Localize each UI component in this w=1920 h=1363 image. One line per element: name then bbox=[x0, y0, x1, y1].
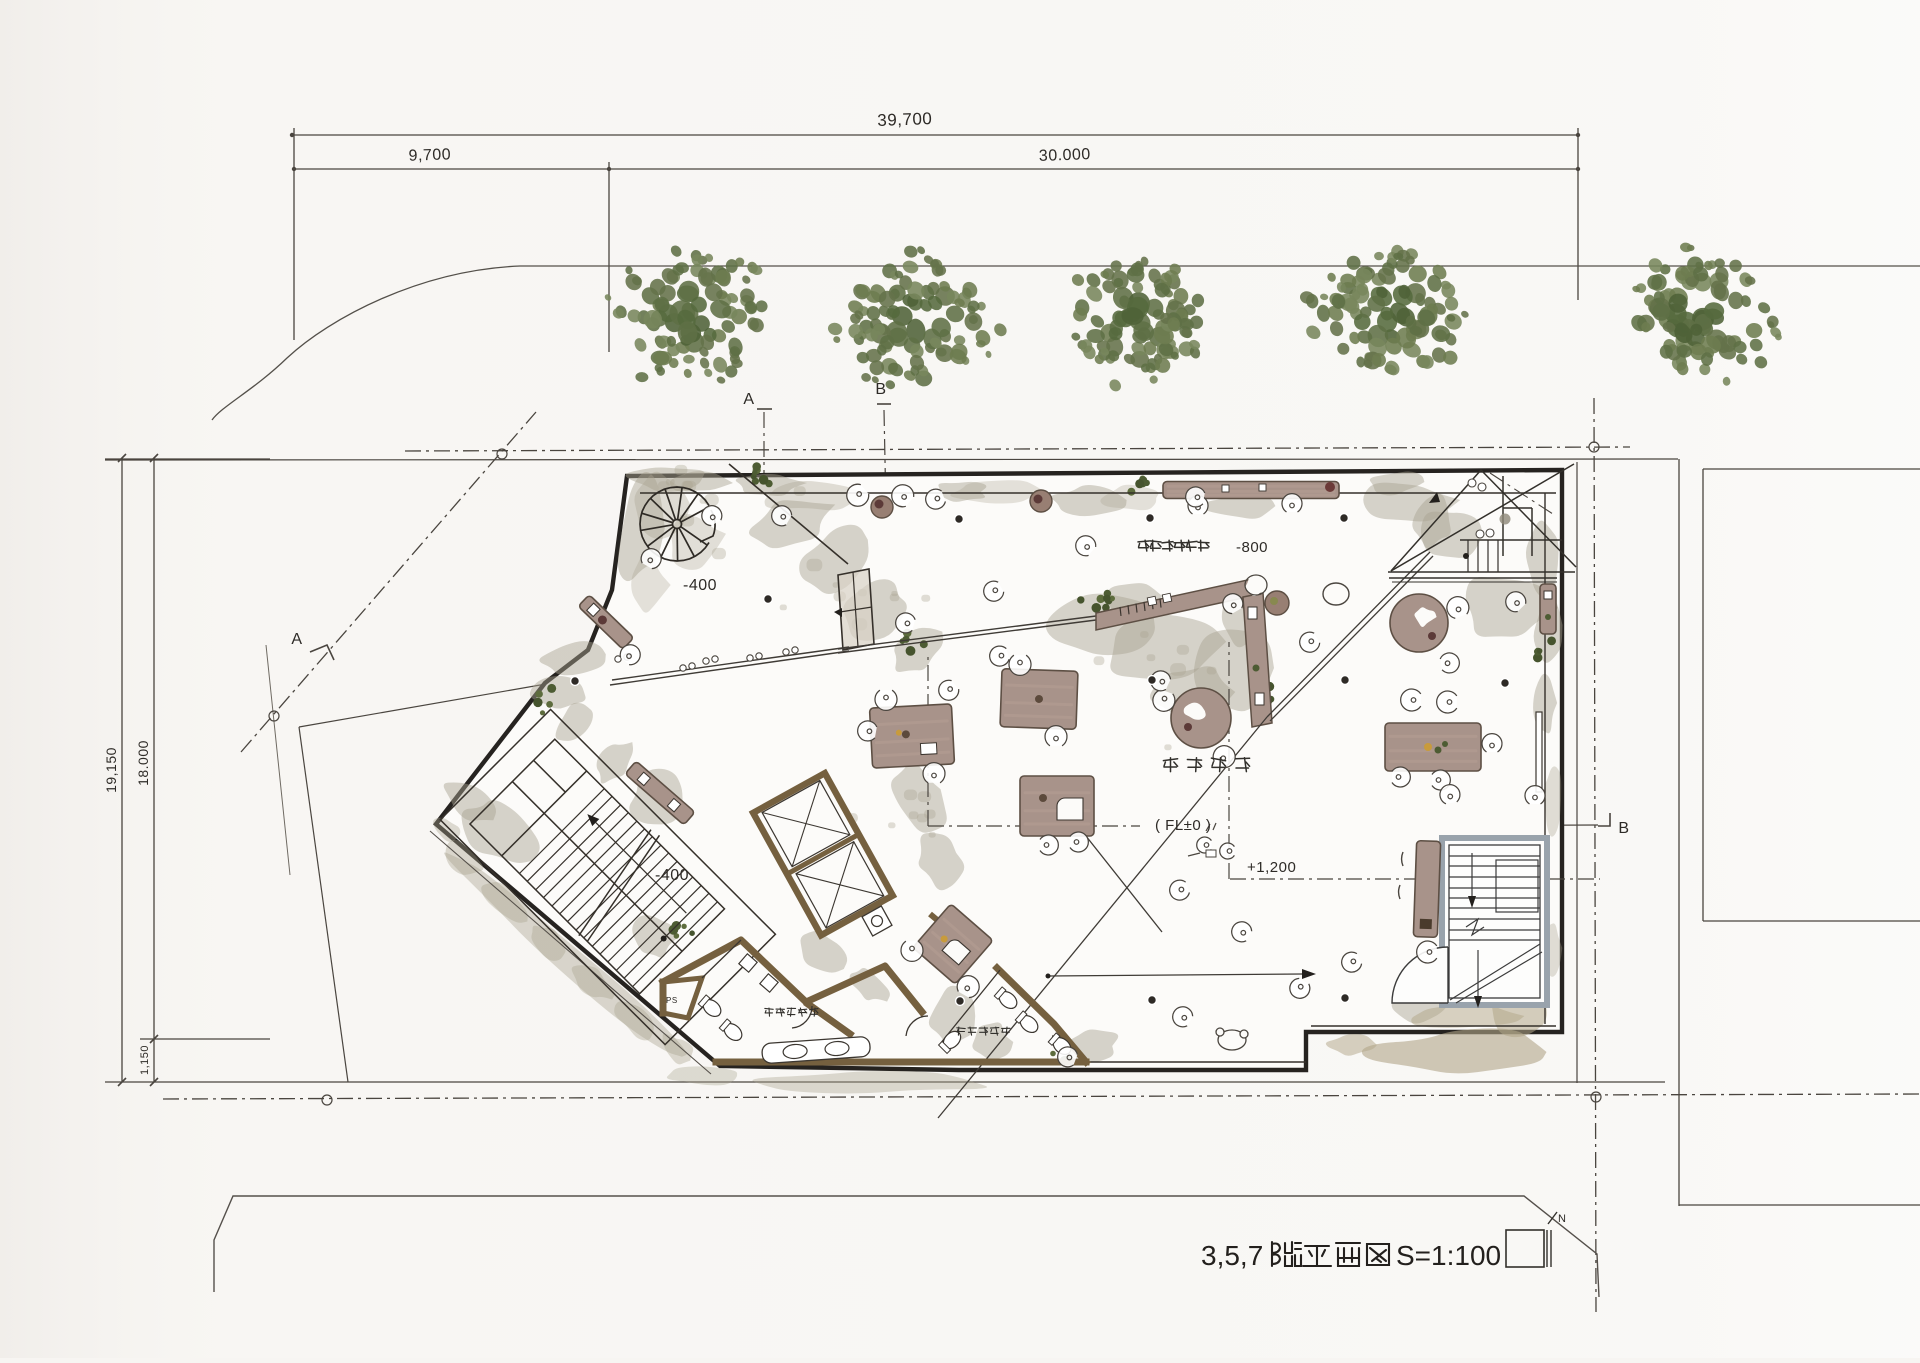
svg-text:3,5,7: 3,5,7 bbox=[1201, 1240, 1263, 1271]
svg-text:B: B bbox=[875, 381, 886, 398]
svg-text:PS: PS bbox=[666, 996, 678, 1005]
svg-text:S=1:100: S=1:100 bbox=[1396, 1240, 1501, 1271]
svg-text:A: A bbox=[743, 391, 754, 408]
svg-text:B: B bbox=[1618, 820, 1629, 837]
svg-text:-400: -400 bbox=[683, 577, 717, 594]
svg-text:18.000: 18.000 bbox=[135, 740, 151, 786]
svg-text:30.000: 30.000 bbox=[1039, 146, 1091, 165]
svg-text:N: N bbox=[1558, 1213, 1566, 1225]
svg-text:39,700: 39,700 bbox=[877, 109, 933, 130]
svg-text:-800: -800 bbox=[1236, 539, 1268, 556]
svg-text:19,150: 19,150 bbox=[103, 747, 119, 793]
svg-text:+1,200: +1,200 bbox=[1247, 859, 1296, 876]
svg-text:( FL±0 ): ( FL±0 ) bbox=[1155, 817, 1211, 834]
svg-text:1,150: 1,150 bbox=[139, 1045, 151, 1075]
svg-text:A: A bbox=[291, 631, 302, 648]
svg-text:-400: -400 bbox=[655, 867, 689, 884]
svg-text:9,700: 9,700 bbox=[408, 146, 451, 164]
